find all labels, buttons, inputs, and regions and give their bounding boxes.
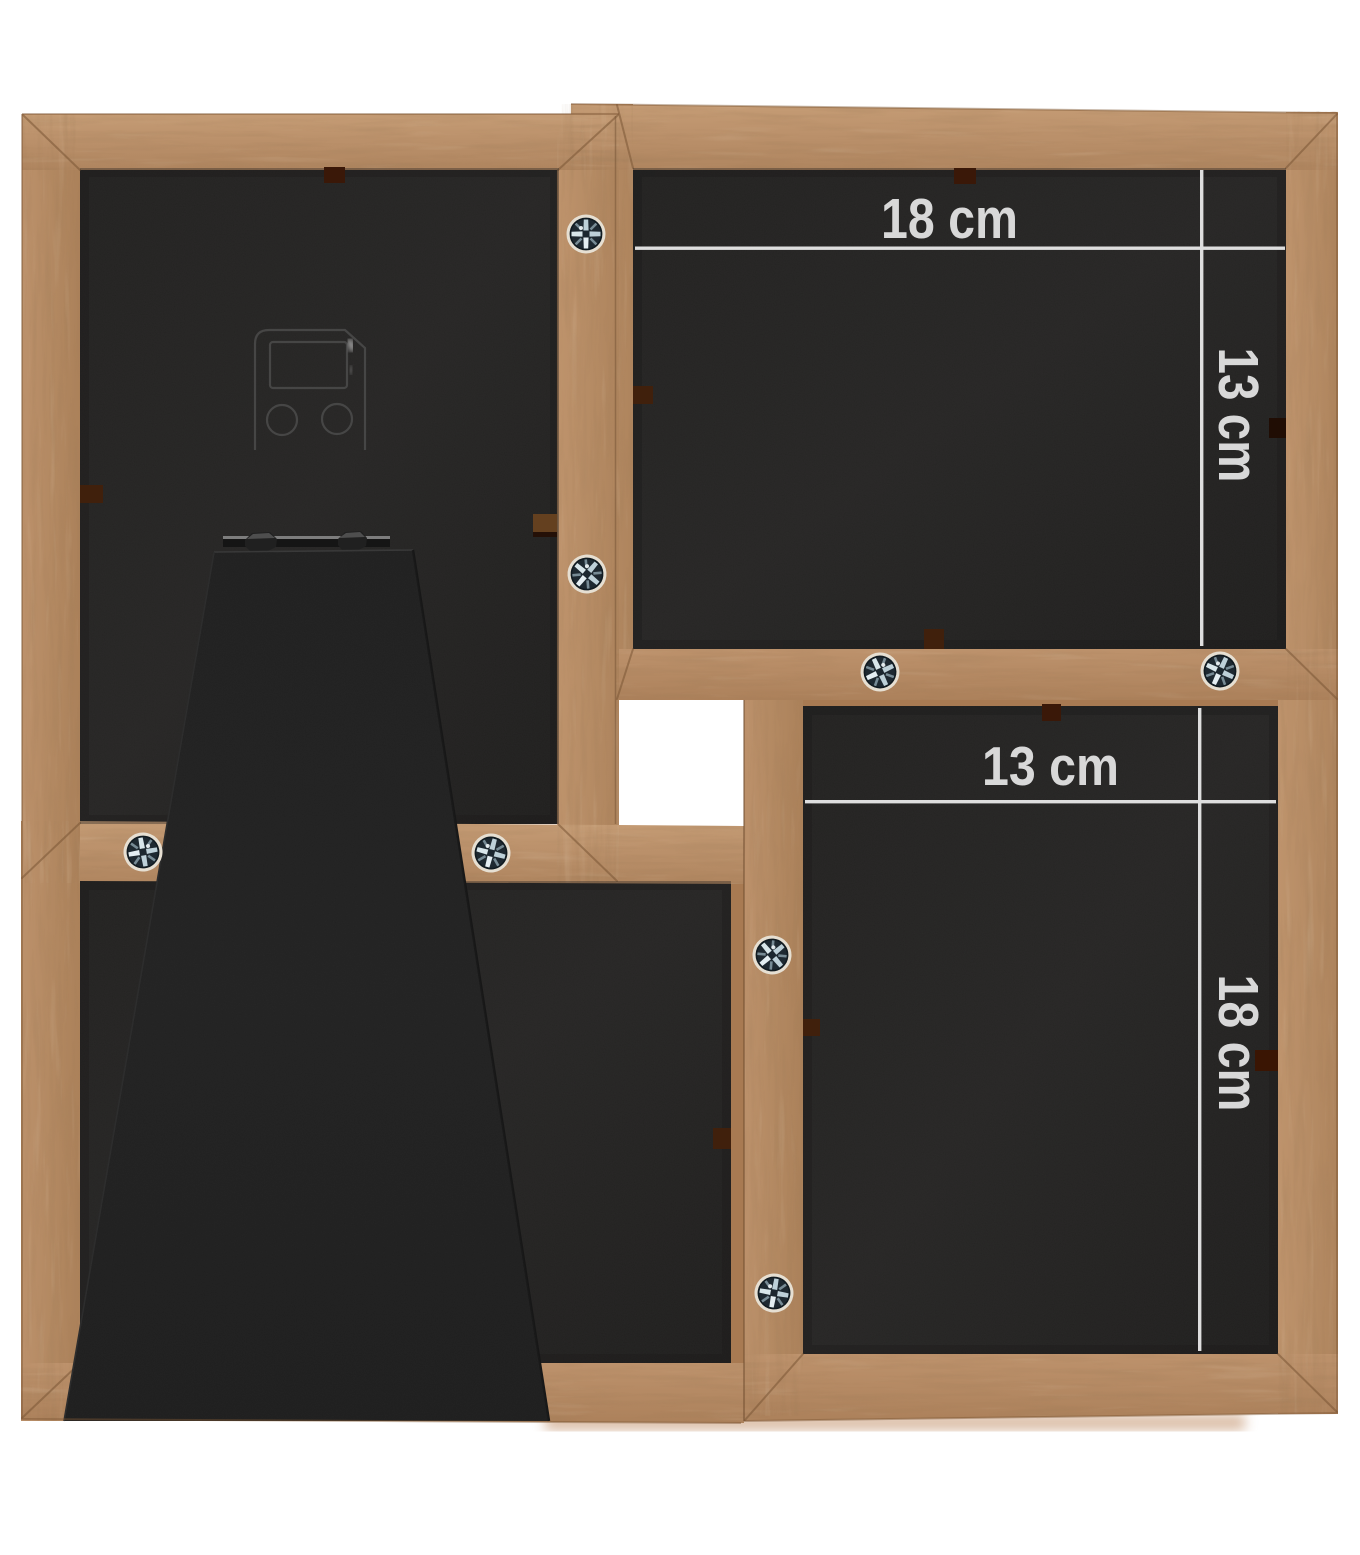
svg-text:13 cm: 13 cm [1206, 348, 1270, 483]
svg-text:18 cm: 18 cm [1206, 975, 1270, 1112]
svg-text:18 cm: 18 cm [881, 187, 1018, 251]
svg-text:13 cm: 13 cm [982, 735, 1119, 797]
